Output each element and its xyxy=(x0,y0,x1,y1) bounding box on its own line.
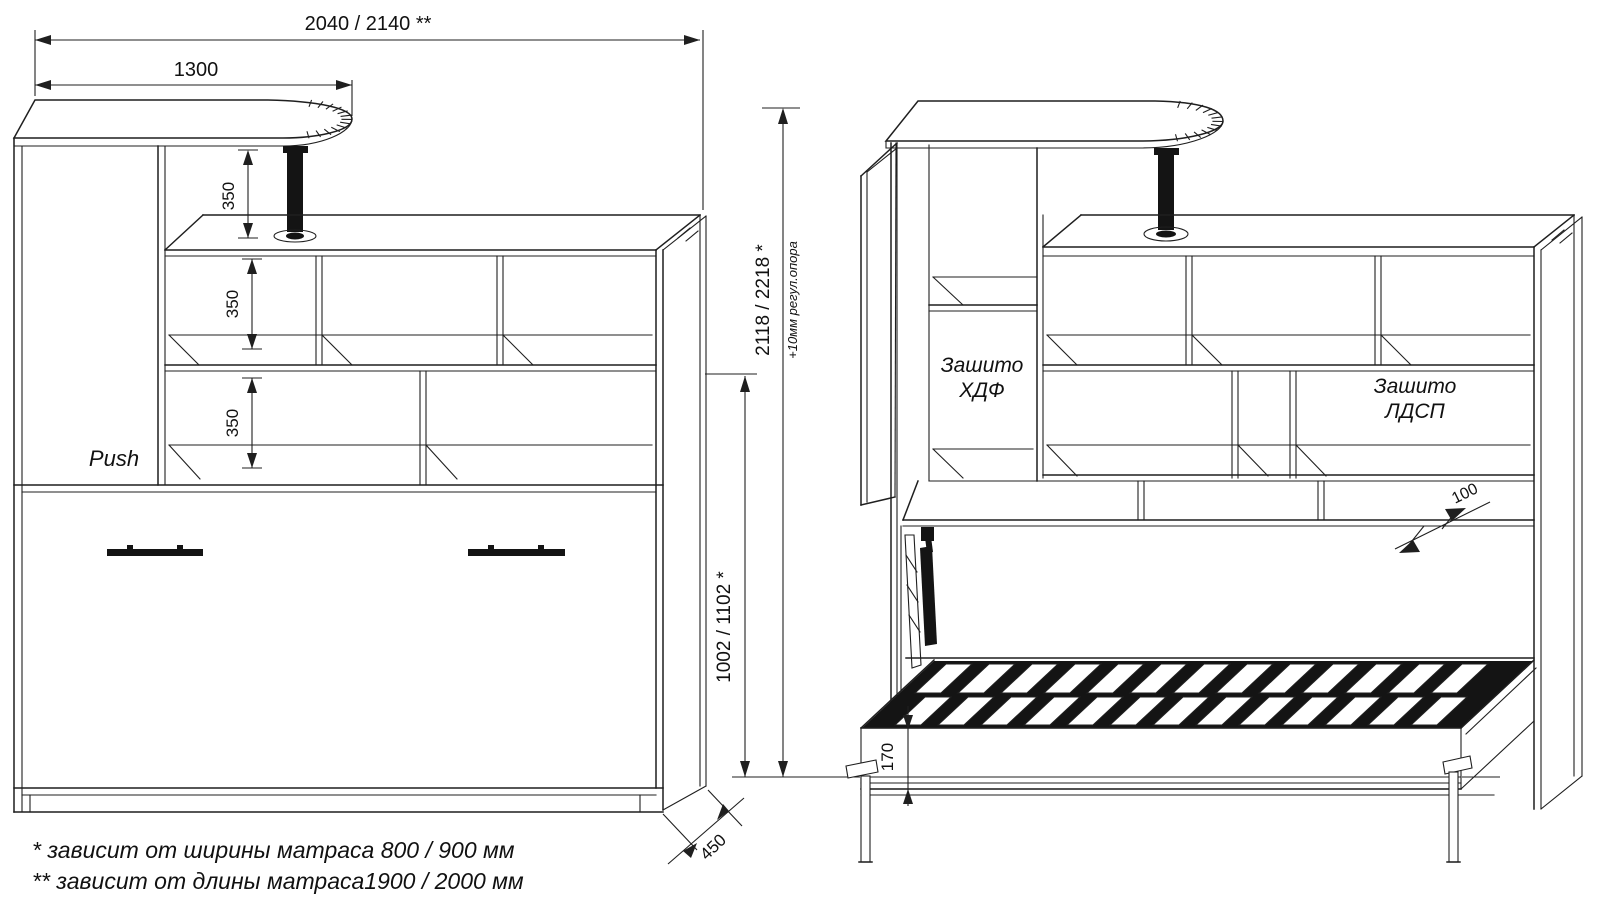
hdf-label-line2: ХДФ xyxy=(958,379,1005,402)
closed-bed-panel xyxy=(14,485,663,556)
open-bed xyxy=(861,660,1536,795)
top-dimensions: 2040 / 2140 ** 1300 xyxy=(35,13,703,210)
open-view: Зашито ХДФ xyxy=(846,101,1582,862)
open-under-band xyxy=(903,481,1534,526)
dim-desk-width: 1300 xyxy=(35,59,352,90)
dim-depth-450: 450 xyxy=(663,790,744,864)
open-desk-top xyxy=(886,101,1223,148)
svg-text:2118 / 2218 *: 2118 / 2218 * xyxy=(753,244,774,356)
gas-lift-mechanism xyxy=(905,527,937,668)
ldsp-label-line1: Зашито xyxy=(1374,375,1457,398)
closed-plinth xyxy=(14,786,706,812)
closed-shelf-unit xyxy=(165,215,706,810)
svg-text:170: 170 xyxy=(878,743,897,771)
footnotes: * зависит от ширины матраса 800 / 900 мм… xyxy=(32,837,524,894)
svg-text:350: 350 xyxy=(223,409,242,437)
bed-frame-front xyxy=(861,728,1461,789)
svg-text:1002 / 1102 *: 1002 / 1102 * xyxy=(714,571,735,683)
bed-handle-right xyxy=(468,549,565,556)
svg-text:350: 350 xyxy=(223,290,242,318)
footnote-1: * зависит от ширины матраса 800 / 900 мм xyxy=(32,837,515,863)
open-support-pole xyxy=(1144,148,1188,241)
dim-shelf-gap-1: 350 xyxy=(219,150,258,238)
regul-opora-note: +10мм регул.опора xyxy=(785,241,800,359)
dim-top-width: 2040 / 2140 ** xyxy=(35,13,700,45)
dim-total-height: 2118 / 2218 * +10мм регул.опора xyxy=(753,108,800,777)
bed-handle-left xyxy=(107,549,203,556)
closed-view: Push xyxy=(14,100,744,864)
dim-bed-section-height: 1002 / 1102 * xyxy=(705,374,757,777)
push-label: Push xyxy=(89,446,139,471)
svg-text:2040 / 2140 **: 2040 / 2140 ** xyxy=(305,13,432,35)
closed-support-pole xyxy=(274,146,316,242)
dim-shelf-offset-100: 100 xyxy=(1395,480,1490,553)
closed-desk-top xyxy=(14,100,352,146)
closed-left-cabinet: Push xyxy=(14,138,165,812)
desk-edge-banding xyxy=(307,100,352,137)
wall-bed-technical-drawing: Push xyxy=(0,0,1600,898)
hdf-label-line1: Зашито xyxy=(941,354,1024,377)
open-left-column: Зашито ХДФ xyxy=(929,148,1043,481)
svg-text:350: 350 xyxy=(219,182,238,210)
svg-text:100: 100 xyxy=(1449,480,1481,507)
footnote-2: ** зависит от длины матраса1900 / 2000 м… xyxy=(32,868,524,894)
bed-leg-right xyxy=(1443,756,1472,862)
drawing-page: Push xyxy=(0,0,1600,898)
ldsp-label-line2: ЛДСП xyxy=(1383,400,1445,423)
svg-text:1300: 1300 xyxy=(174,59,219,81)
dim-shelf-gap-3: 350 xyxy=(223,378,262,468)
